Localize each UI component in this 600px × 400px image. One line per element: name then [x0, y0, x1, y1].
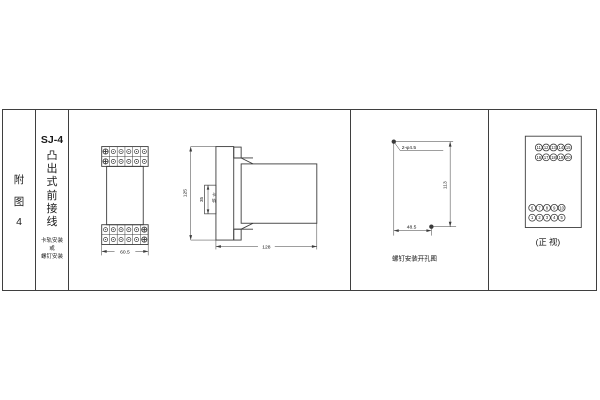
terminal-number: 11 — [537, 145, 542, 150]
drilling-view-column: 2-φ4.5 113 48.5 螺钉安装开孔图 — [351, 110, 489, 290]
mounting-note-line: 螺钉安装 — [41, 253, 63, 261]
side-height-dim-label: 125 — [183, 189, 189, 197]
outline-views-column: 60.5 125 — [69, 110, 351, 290]
mounting-note-line: 卡轨安装 — [41, 237, 63, 245]
figure-index-column: 附 图 4 — [3, 110, 36, 290]
rail-label-char: 卡 — [212, 192, 216, 197]
title-char: 接 — [47, 203, 58, 216]
drilling-caption: 螺钉安装开孔图 — [392, 253, 437, 262]
holes-callout: 2-φ4.5 — [394, 142, 443, 151]
mounting-note: 卡轨安装 或 螺钉安装 — [41, 237, 63, 261]
terminal-number: 15 — [566, 145, 571, 150]
drill-width-dim-label: 48.5 — [407, 225, 417, 231]
drilling-holes — [392, 139, 434, 228]
holes-callout-label: 2-φ4.5 — [402, 145, 417, 151]
terminal-number: 19 — [559, 155, 564, 160]
terminal-number: 10 — [559, 205, 564, 210]
front-width-dim-label: 60.5 — [120, 249, 130, 255]
rail-width-dim-label: 35 — [199, 197, 204, 203]
drill-height-dimension: 113 — [443, 142, 452, 227]
title-column: SJ-4 凸 出 式 前 接 线 卡轨安装 或 螺钉安装 — [36, 110, 69, 290]
terminal-number: 18 — [551, 155, 556, 160]
figure-index-label: 附 图 4 — [3, 110, 35, 228]
outline-views-drawing: 60.5 125 — [69, 110, 350, 290]
title-char: 出 — [47, 163, 58, 176]
terminal-number: 13 — [551, 145, 556, 150]
drilling-drawing: 2-φ4.5 113 48.5 螺钉安装开孔图 — [351, 110, 488, 290]
terminal-number: 12 — [544, 145, 549, 150]
rail-width-dimension: 35 卡 轨 — [199, 185, 216, 214]
drawing-band: 附 图 4 SJ-4 凸 出 式 前 接 线 卡轨安装 或 螺钉安装 — [2, 109, 597, 291]
title-stack: SJ-4 凸 出 式 前 接 线 卡轨安装 或 螺钉安装 — [36, 110, 68, 261]
front-view-drawing: 1112131415161718192067891012345 (正 视) — [489, 110, 596, 290]
figure-index-char: 附 — [14, 172, 25, 187]
front-view-column: 1112131415161718192067891012345 (正 视) — [489, 110, 596, 290]
figure-index-char: 图 — [14, 194, 25, 209]
front-view-caption: (正 视) — [536, 237, 561, 247]
terminal-number: 20 — [566, 155, 571, 160]
rail-label-char: 轨 — [212, 198, 216, 203]
terminal-circles: 1112131415161718192067891012345 — [529, 144, 572, 221]
terminal-block-cells — [102, 147, 148, 245]
terminal-number: 14 — [559, 145, 564, 150]
drill-width-dimension: 48.5 — [394, 225, 432, 232]
side-outline-view — [205, 147, 317, 240]
side-depth-dim-label: 128 — [262, 244, 270, 250]
terminal-number: 17 — [544, 155, 549, 160]
side-height-dimension: 125 — [183, 147, 216, 240]
title-vertical-text: 凸 出 式 前 接 线 — [47, 150, 58, 229]
figure-index-char: 4 — [16, 216, 22, 228]
drill-height-dim-label: 113 — [443, 181, 449, 189]
terminal-number: 16 — [536, 155, 541, 160]
title-char: 式 — [47, 176, 58, 189]
front-width-dimension: 60.5 — [102, 245, 148, 256]
title-char: 前 — [47, 190, 58, 203]
title-char: 线 — [47, 216, 58, 229]
side-depth-dimension: 128 — [216, 223, 317, 250]
mounting-note-line: 或 — [41, 245, 63, 253]
title-char: 凸 — [47, 150, 58, 163]
model-number: SJ-4 — [41, 134, 63, 146]
